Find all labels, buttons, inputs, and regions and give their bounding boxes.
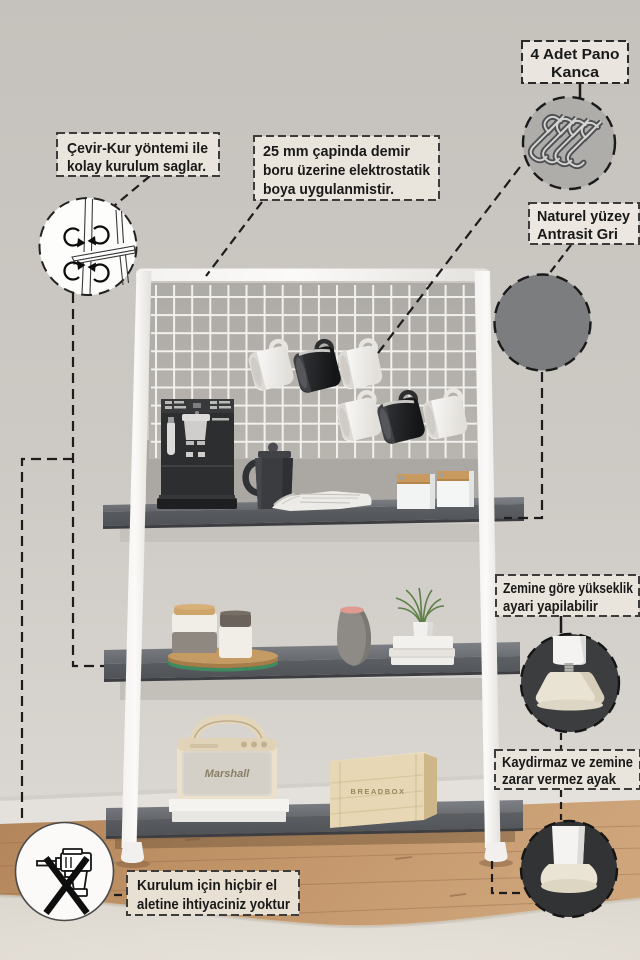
- svg-text:zarar vermez ayak: zarar vermez ayak: [502, 771, 617, 788]
- svg-text:boru üzerine elektrostatik: boru üzerine elektrostatik: [263, 162, 431, 179]
- svg-text:4 Adet Pano: 4 Adet Pano: [531, 46, 620, 63]
- svg-text:25 mm çapinda demir: 25 mm çapinda demir: [263, 143, 410, 160]
- svg-text:ayari yapilabilir: ayari yapilabilir: [503, 598, 598, 615]
- svg-text:kolay kurulum saglar.: kolay kurulum saglar.: [67, 158, 206, 175]
- svg-text:Kaydirmaz ve zemine: Kaydirmaz ve zemine: [502, 754, 633, 771]
- svg-text:Çevir-Kur yöntemi ile: Çevir-Kur yöntemi ile: [67, 140, 208, 157]
- svg-text:Antrasit Gri: Antrasit Gri: [537, 226, 618, 243]
- svg-text:aletine ihtiyaciniz yoktur: aletine ihtiyaciniz yoktur: [137, 896, 290, 913]
- svg-text:Marshall: Marshall: [205, 768, 251, 780]
- svg-text:Naturel yüzey: Naturel yüzey: [537, 208, 631, 225]
- svg-text:Zemine göre yükseklik: Zemine göre yükseklik: [503, 580, 634, 597]
- svg-text:BREADBOX: BREADBOX: [351, 787, 406, 796]
- svg-text:Kurulum için hiçbir el: Kurulum için hiçbir el: [137, 877, 277, 894]
- svg-text:Kanca: Kanca: [551, 64, 600, 81]
- svg-text:boya uygulanmistir.: boya uygulanmistir.: [263, 181, 394, 198]
